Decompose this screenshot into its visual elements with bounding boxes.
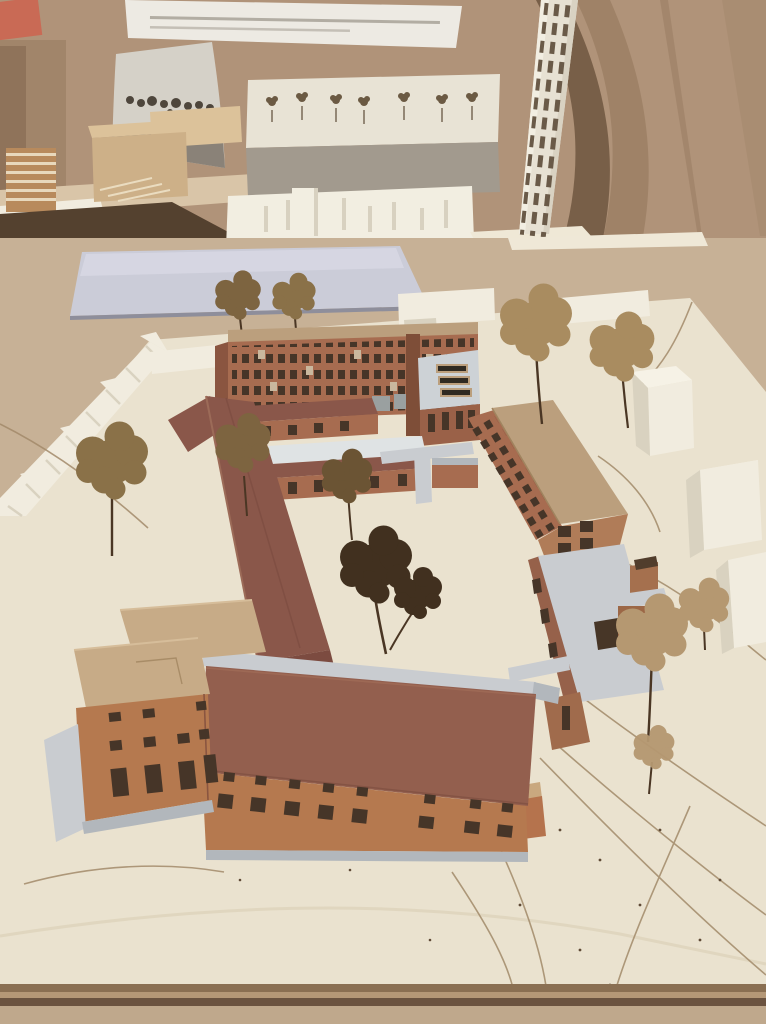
foreground-red-roof-building	[202, 666, 536, 862]
board-edge-strip-2	[0, 992, 766, 998]
red-card	[0, 0, 42, 41]
board-edge-strip-3	[0, 998, 766, 1006]
street-model-top	[246, 74, 500, 148]
scene-canvas	[0, 0, 766, 1024]
table-front-edge	[0, 1006, 766, 1024]
stair-tower	[406, 334, 420, 436]
board-edge-strip-1	[0, 984, 766, 992]
striped-mini-model	[6, 148, 56, 212]
gray-roof-annex	[418, 350, 480, 446]
wood-block	[92, 132, 188, 202]
model-photo-scene	[0, 0, 766, 1024]
